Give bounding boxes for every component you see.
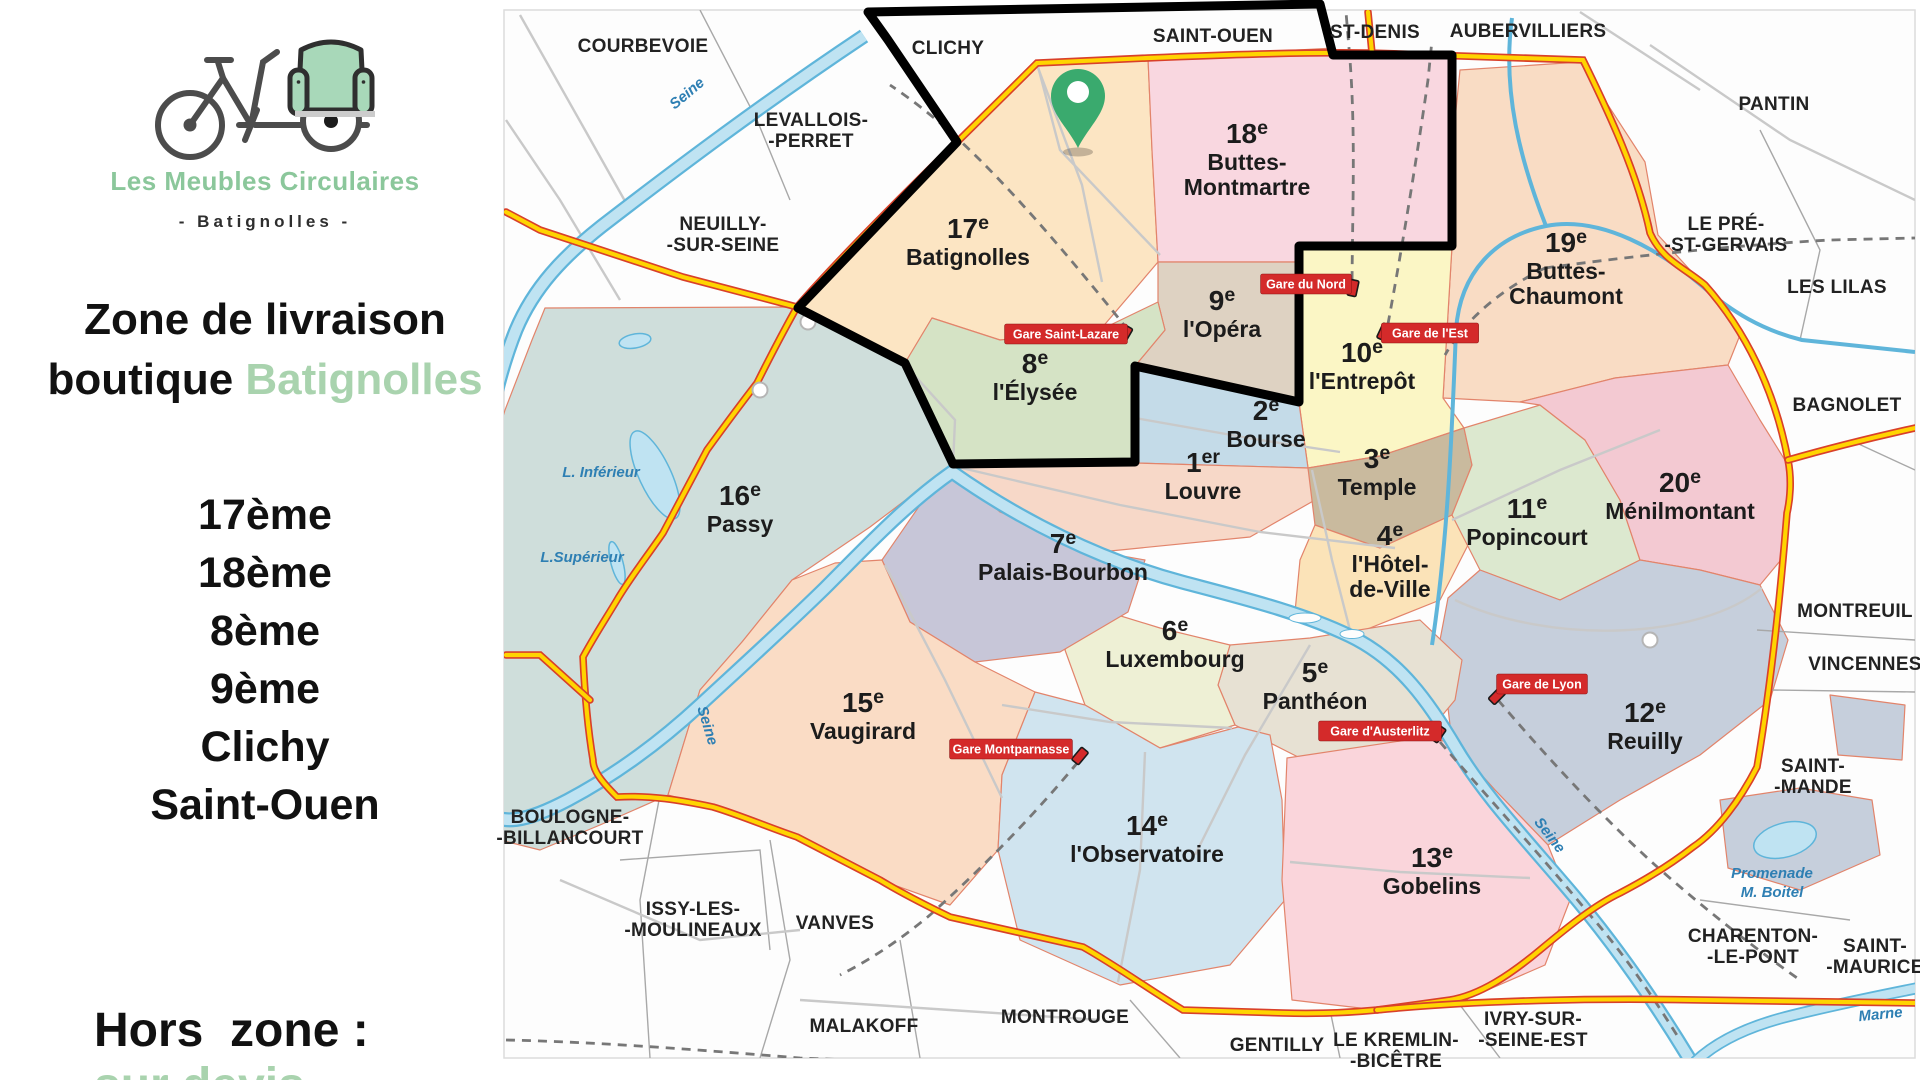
brand-location: - Batignolles - <box>0 212 530 232</box>
svg-text:LEVALLOIS-: LEVALLOIS- <box>754 110 869 131</box>
svg-text:Palais-Bourbon: Palais-Bourbon <box>978 559 1148 585</box>
svg-text:BAGNOLET: BAGNOLET <box>1792 395 1901 416</box>
svg-text:L. Inférieur: L. Inférieur <box>562 464 641 481</box>
svg-text:Passy: Passy <box>707 511 774 537</box>
suburb-label: SAINT--MANDE <box>1774 756 1852 798</box>
svg-text:l'Élysée: l'Élysée <box>993 378 1078 405</box>
svg-text:Ménilmontant: Ménilmontant <box>1605 498 1755 524</box>
svg-text:Louvre: Louvre <box>1165 478 1242 504</box>
cargo-bike-logo <box>135 22 395 162</box>
footer-label: Hors zone : <box>94 1004 369 1057</box>
svg-text:-BICÊTRE: -BICÊTRE <box>1350 1050 1442 1072</box>
svg-text:LE KREMLIN-: LE KREMLIN- <box>1333 1030 1459 1051</box>
headline-boutique-name: Batignolles <box>245 355 482 404</box>
svg-text:MALAKOFF: MALAKOFF <box>810 1016 919 1037</box>
zone-item: 18ème <box>0 544 530 602</box>
suburb-label: AUBERVILLIERS <box>1450 21 1607 42</box>
info-panel: Les Meubles Circulaires - Batignolles - … <box>0 0 530 1080</box>
svg-text:Gare Saint-Lazare: Gare Saint-Lazare <box>1013 328 1119 342</box>
svg-text:Buttes-: Buttes- <box>1207 149 1286 175</box>
svg-text:ISSY-LES-: ISSY-LES- <box>646 899 741 920</box>
suburb-label: NEUILLY--SUR-SEINE <box>667 214 780 256</box>
svg-text:l'Observatoire: l'Observatoire <box>1070 841 1224 867</box>
pin-shadow <box>1063 148 1093 157</box>
svg-text:M. Boitel: M. Boitel <box>1741 884 1804 901</box>
svg-text:Gobelins: Gobelins <box>1383 873 1481 899</box>
svg-text:LES LILAS: LES LILAS <box>1787 277 1887 298</box>
suburb-label: MALAKOFF <box>810 1016 919 1037</box>
bike-handlebar <box>251 52 277 125</box>
svg-text:COURBEVOIE: COURBEVOIE <box>578 36 709 57</box>
svg-text:Gare du Nord: Gare du Nord <box>1266 278 1346 292</box>
svg-text:-PERRET: -PERRET <box>768 131 854 152</box>
svg-text:-MANDE: -MANDE <box>1774 777 1852 798</box>
svg-text:Buttes-: Buttes- <box>1526 258 1605 284</box>
water-label: L.Supérieur <box>540 549 625 566</box>
svg-text:SAINT-: SAINT- <box>1781 756 1845 777</box>
svg-text:MONTREUIL: MONTREUIL <box>1797 601 1913 622</box>
suburb-label: LE KREMLIN--BICÊTRE <box>1333 1030 1459 1072</box>
svg-text:Gare de Lyon: Gare de Lyon <box>1502 678 1581 692</box>
svg-text:-MAURICE: -MAURICE <box>1826 957 1920 978</box>
suburb-label: VINCENNES <box>1808 654 1920 675</box>
svg-text:L.Supérieur: L.Supérieur <box>540 549 625 566</box>
suburb-label: SAINT-OUEN <box>1153 26 1273 47</box>
station: Gare d'Austerlitz <box>1319 721 1447 743</box>
svg-text:VINCENNES: VINCENNES <box>1808 654 1920 675</box>
svg-text:Bourse: Bourse <box>1226 426 1305 452</box>
headline-line1: Zone de livraison <box>84 295 446 344</box>
svg-text:Reuilly: Reuilly <box>1607 728 1683 754</box>
svg-text:-SUR-SEINE: -SUR-SEINE <box>667 235 780 256</box>
svg-text:SAINT-: SAINT- <box>1843 936 1907 957</box>
svg-text:-ST-GERVAIS: -ST-GERVAIS <box>1665 235 1788 256</box>
zone-item: Clichy <box>0 718 530 776</box>
svg-text:Gare d'Austerlitz: Gare d'Austerlitz <box>1330 725 1430 739</box>
footer-value: sur devis <box>94 1059 305 1080</box>
headline-line2: boutique <box>47 355 233 404</box>
brand-name: Les Meubles Circulaires <box>0 166 530 197</box>
svg-text:-LE-PONT: -LE-PONT <box>1707 947 1799 968</box>
svg-text:Panthéon: Panthéon <box>1263 688 1368 714</box>
svg-text:Vaugirard: Vaugirard <box>810 718 916 744</box>
svg-text:LE PRÉ-: LE PRÉ- <box>1687 213 1764 235</box>
zone-item: 17ème <box>0 486 530 544</box>
suburb-label: PANTIN <box>1738 94 1809 115</box>
bike-seat <box>207 60 231 78</box>
suburb-label: BAGNOLET <box>1792 395 1901 416</box>
svg-text:VANVES: VANVES <box>796 913 875 934</box>
headline: Zone de livraison boutique Batignolles <box>0 290 530 410</box>
zone-item: Saint-Ouen <box>0 776 530 834</box>
svg-text:IVRY-SUR-: IVRY-SUR- <box>1484 1009 1582 1030</box>
svg-text:Popincourt: Popincourt <box>1466 524 1588 550</box>
svg-text:-MOULINEAUX: -MOULINEAUX <box>624 920 761 941</box>
suburb-label: COURBEVOIE <box>578 36 709 57</box>
svg-text:PANTIN: PANTIN <box>1738 94 1809 115</box>
suburb-label: LES LILAS <box>1787 277 1887 298</box>
water-label: L. Inférieur <box>562 464 641 481</box>
seine-island <box>1289 613 1321 623</box>
suburb-label: MONTROUGE <box>1001 1007 1129 1028</box>
seine-island <box>1340 630 1364 639</box>
svg-text:ST-DENIS: ST-DENIS <box>1330 22 1420 43</box>
zone-item: 9ème <box>0 660 530 718</box>
svg-text:Batignolles: Batignolles <box>906 244 1030 270</box>
svg-text:NEUILLY-: NEUILLY- <box>679 214 766 235</box>
svg-text:CLICHY: CLICHY <box>912 38 985 59</box>
svg-text:Gare de l'Est: Gare de l'Est <box>1392 327 1469 341</box>
svg-text:CHARENTON-: CHARENTON- <box>1688 926 1818 947</box>
station: Gare Saint-Lazare <box>1005 324 1133 344</box>
suburb-label: VANVES <box>796 913 875 934</box>
svg-text:Temple: Temple <box>1338 474 1417 500</box>
suburb-label: CLICHY <box>912 38 985 59</box>
arr-18-shape <box>1148 48 1452 262</box>
svg-text:Luxembourg: Luxembourg <box>1105 646 1244 672</box>
svg-text:Montmartre: Montmartre <box>1184 174 1311 200</box>
zone-item: 8ème <box>0 602 530 660</box>
suburb-label: MONTREUIL <box>1797 601 1913 622</box>
armchair-icon <box>290 42 375 149</box>
suburb-label: GENTILLY <box>1230 1035 1325 1056</box>
svg-text:l'Hôtel-: l'Hôtel- <box>1351 551 1428 577</box>
flyer: Gare Saint-LazareGare du NordGare de l'E… <box>0 0 1920 1080</box>
svg-text:AUBERVILLIERS: AUBERVILLIERS <box>1450 21 1607 42</box>
svg-text:-SEINE-EST: -SEINE-EST <box>1478 1030 1588 1051</box>
svg-text:de-Ville: de-Ville <box>1349 576 1430 602</box>
svg-text:Chaumont: Chaumont <box>1509 283 1623 309</box>
svg-text:l'Opéra: l'Opéra <box>1183 316 1262 342</box>
svg-text:Gare Montparnasse: Gare Montparnasse <box>953 743 1070 757</box>
suburb-label: ST-DENIS <box>1330 22 1420 43</box>
out-of-zone-note: Hors zone : sur devis <box>14 948 544 1080</box>
suburb-label: CHARENTON--LE-PONT <box>1688 926 1818 968</box>
station: Gare du Nord <box>1261 274 1359 297</box>
pin-hole <box>1067 81 1089 103</box>
suburb-label: LEVALLOIS--PERRET <box>754 110 869 152</box>
svg-text:SAINT-OUEN: SAINT-OUEN <box>1153 26 1273 47</box>
svg-text:Promenade: Promenade <box>1731 865 1813 882</box>
zone-list: 17ème18ème8ème9èmeClichySaint-Ouen <box>0 486 530 834</box>
svg-text:GENTILLY: GENTILLY <box>1230 1035 1325 1056</box>
suburb-label: IVRY-SUR--SEINE-EST <box>1478 1009 1588 1051</box>
station: Gare de l'Est <box>1377 323 1479 343</box>
bois-de-vincennes <box>1830 695 1905 760</box>
svg-text:MONTROUGE: MONTROUGE <box>1001 1007 1129 1028</box>
svg-text:l'Entrepôt: l'Entrepôt <box>1309 368 1416 394</box>
